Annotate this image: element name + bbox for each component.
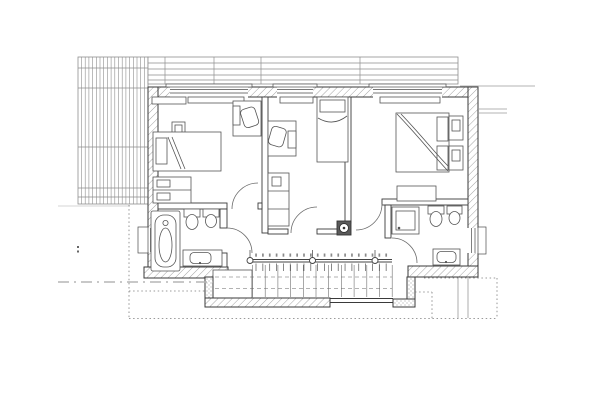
pillow	[437, 117, 448, 141]
wall-bathroom-left-east-upper	[220, 209, 227, 228]
bedroom-middle	[268, 97, 348, 226]
wall-bed2-south-right	[317, 229, 339, 234]
door-arc-bathroom-right	[392, 238, 417, 263]
bathroom-left	[151, 209, 222, 271]
railing-post	[247, 258, 253, 264]
washbasin-tap	[445, 261, 447, 263]
bathroom-right	[392, 206, 462, 265]
window-bathroom-right	[467, 227, 486, 254]
pillow	[437, 146, 448, 170]
pillow	[156, 138, 167, 164]
pillow	[320, 100, 345, 112]
radiator	[280, 97, 313, 103]
door-arc-bedroom-master	[356, 204, 382, 230]
floor-plan-page	[0, 0, 600, 401]
stair-landing	[213, 270, 252, 298]
floor-plan-drawing	[0, 0, 600, 401]
bidet-bowl	[449, 212, 460, 225]
bedroom-left	[152, 97, 261, 203]
bidet-bowl	[206, 215, 217, 228]
window-bedroom-left	[166, 84, 252, 98]
parapet-bottom	[205, 298, 330, 307]
staircase	[213, 250, 392, 298]
step-number-marks	[255, 254, 387, 257]
bedroom-master	[380, 97, 463, 201]
door-arc-bedroom-left	[232, 183, 258, 209]
section-mark-dot	[77, 246, 79, 248]
stair-treads	[253, 265, 393, 297]
railing-post	[372, 258, 378, 264]
wall-bed2-south-left	[268, 229, 288, 234]
railing-post	[310, 258, 316, 264]
desk-shelf	[233, 106, 240, 125]
section-mark-dot	[77, 251, 79, 253]
stair-railing	[247, 250, 392, 271]
roof-panel-left	[78, 57, 148, 204]
parapet-right-corner	[393, 299, 415, 307]
door-arc-bathroom-left	[227, 228, 252, 253]
toilet-bowl	[430, 212, 442, 227]
bench	[397, 186, 436, 201]
wall-shelf	[152, 97, 186, 104]
wall-bathroom-right-west	[385, 205, 391, 238]
wall-bathroom-left-north	[158, 203, 227, 209]
window-bedroom-middle	[273, 84, 317, 98]
shower-drain	[398, 227, 401, 230]
hallway	[337, 221, 351, 235]
partition-bed1-bed2	[262, 97, 268, 233]
wall-stub	[258, 203, 262, 209]
door-arc-bedroom-middle	[291, 207, 317, 233]
roof-band-top	[148, 57, 458, 84]
window-bedroom-master	[369, 84, 446, 98]
wall-bottom-right	[408, 266, 478, 277]
monitor	[288, 131, 296, 148]
radiator	[380, 97, 440, 103]
washbasin-tap	[199, 262, 201, 264]
toilet-bowl	[186, 215, 198, 230]
